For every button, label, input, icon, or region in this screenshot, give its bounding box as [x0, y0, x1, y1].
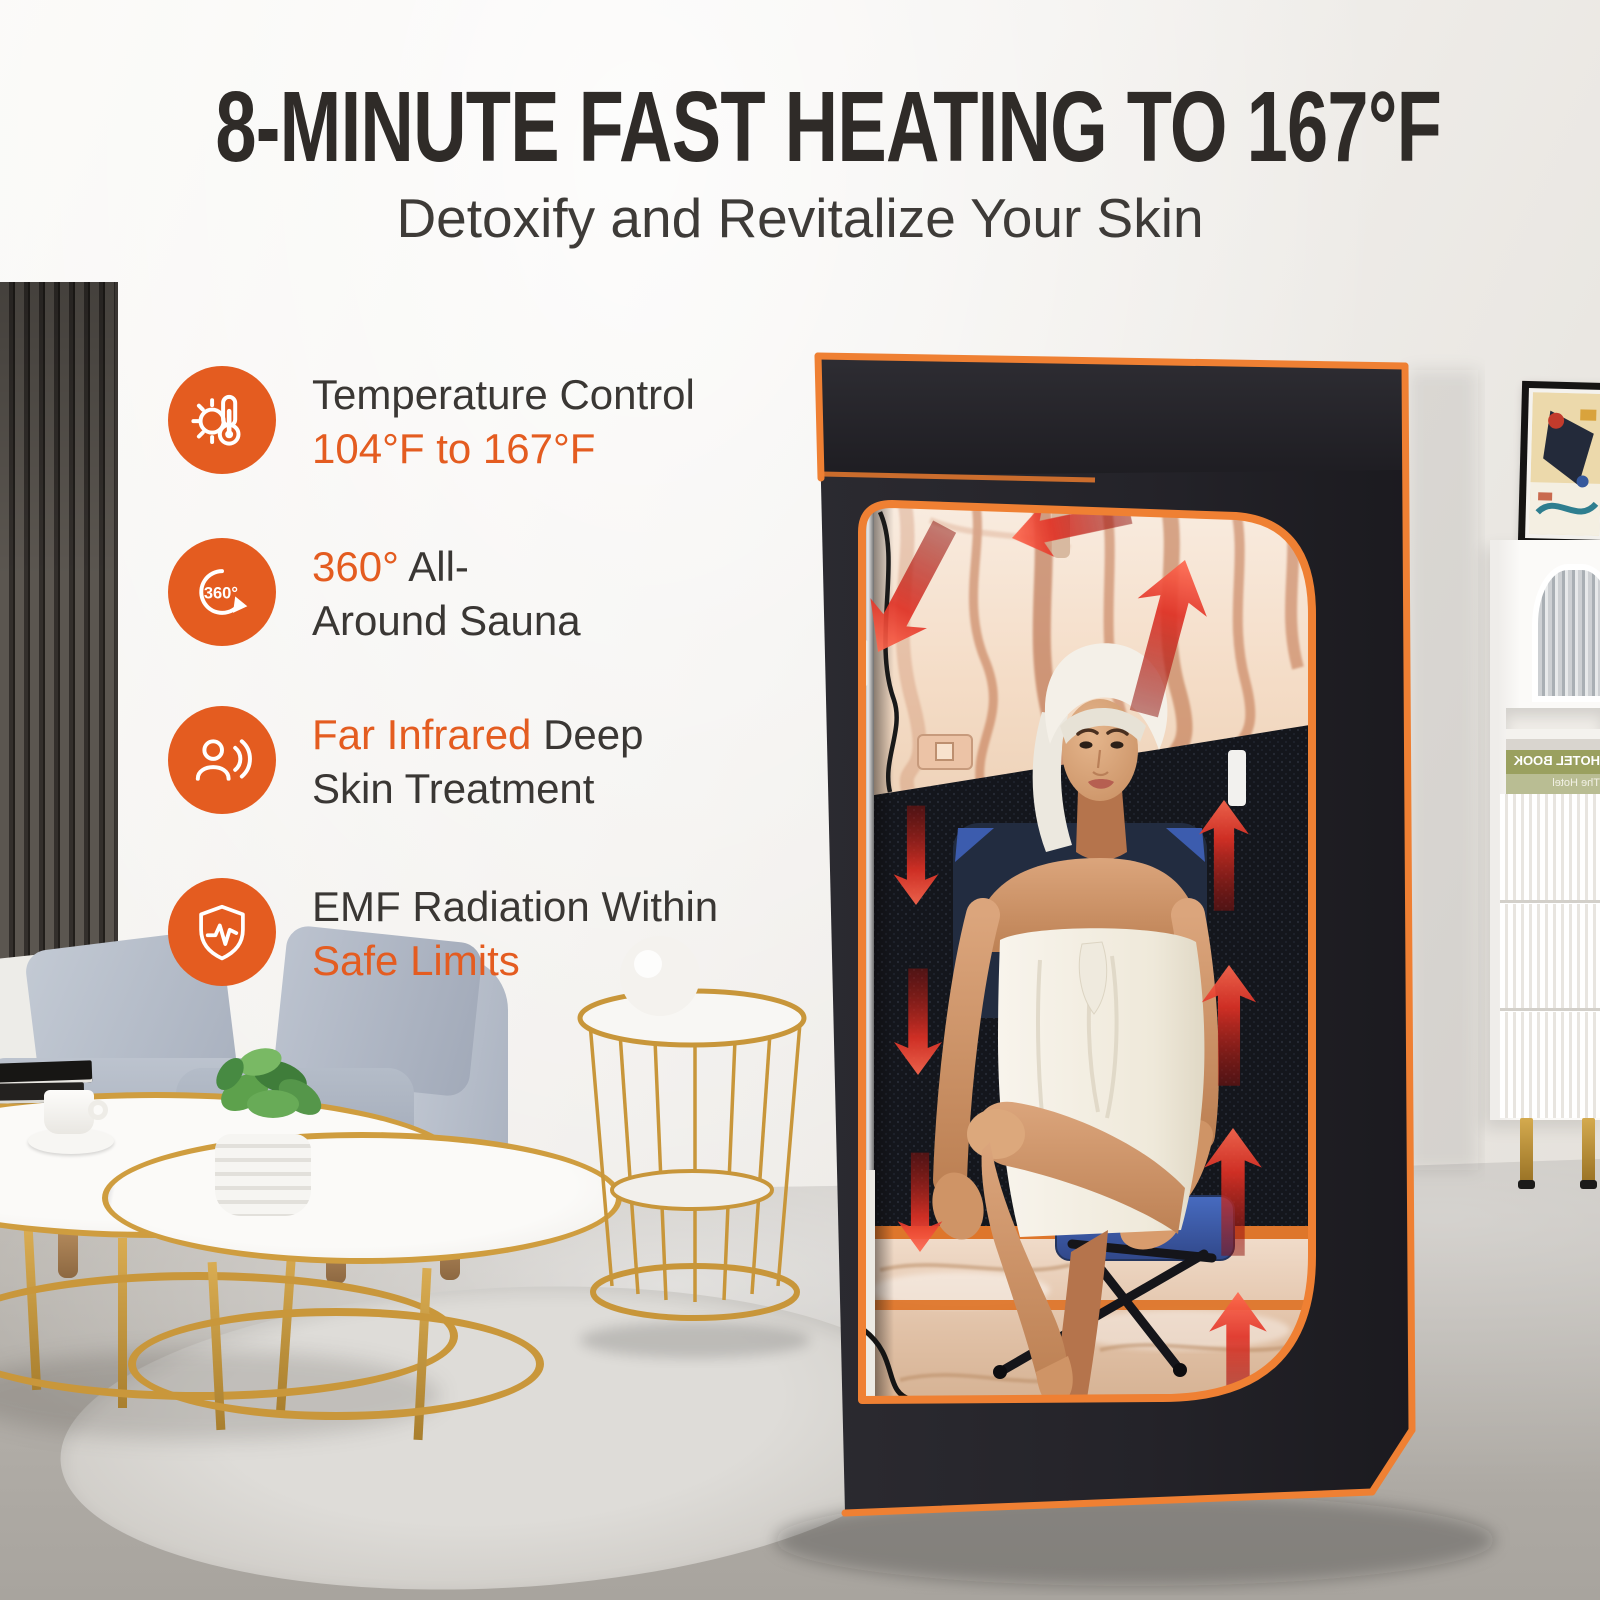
page-subtitle: Detoxify and Revitalize Your Skin — [0, 186, 1600, 250]
feature-temperature-control: Temperature Control 104°F to 167°F — [168, 366, 868, 476]
rotation-360-icon: 360° — [168, 538, 276, 646]
headline: 8-MINUTE FAST HEATING TO 167°F — [0, 70, 1600, 185]
eye — [1080, 741, 1093, 748]
shield-pulse-icon — [168, 878, 276, 986]
knee — [967, 1109, 1025, 1159]
page-title: 8-MINUTE FAST HEATING TO 167°F — [215, 70, 1441, 185]
feature-text: 360° All- Around Sauna — [312, 538, 581, 648]
control-panel — [918, 735, 972, 769]
icon-360-label: 360° — [204, 585, 238, 603]
product-marketing-image: HOTEL BOOK The Hotel — [0, 0, 1600, 1600]
table-cage-legs — [590, 1023, 800, 1302]
feature-text: EMF Radiation Within Safe Limits — [312, 878, 718, 988]
thermometer-sun-icon — [168, 366, 276, 474]
zipper-tag — [1228, 750, 1246, 806]
feature-text: Far Infrared Deep Skin Treatment — [312, 706, 644, 816]
infrared-person-icon — [168, 706, 276, 814]
wall-shadow — [1408, 370, 1478, 1170]
gold-side-table — [540, 928, 870, 1368]
table-lower-shelf — [612, 1171, 772, 1209]
feature-far-infrared: Far Infrared Deep Skin Treatment — [168, 706, 868, 816]
sauna-roof — [818, 356, 1405, 476]
sauna-interior — [850, 486, 1318, 1458]
feature-emf-safe: EMF Radiation Within Safe Limits — [168, 878, 868, 988]
feature-360-sauna: 360° 360° All- Around Sauna — [168, 538, 868, 648]
feature-text: Temperature Control 104°F to 167°F — [312, 366, 695, 476]
eye — [1111, 741, 1124, 748]
